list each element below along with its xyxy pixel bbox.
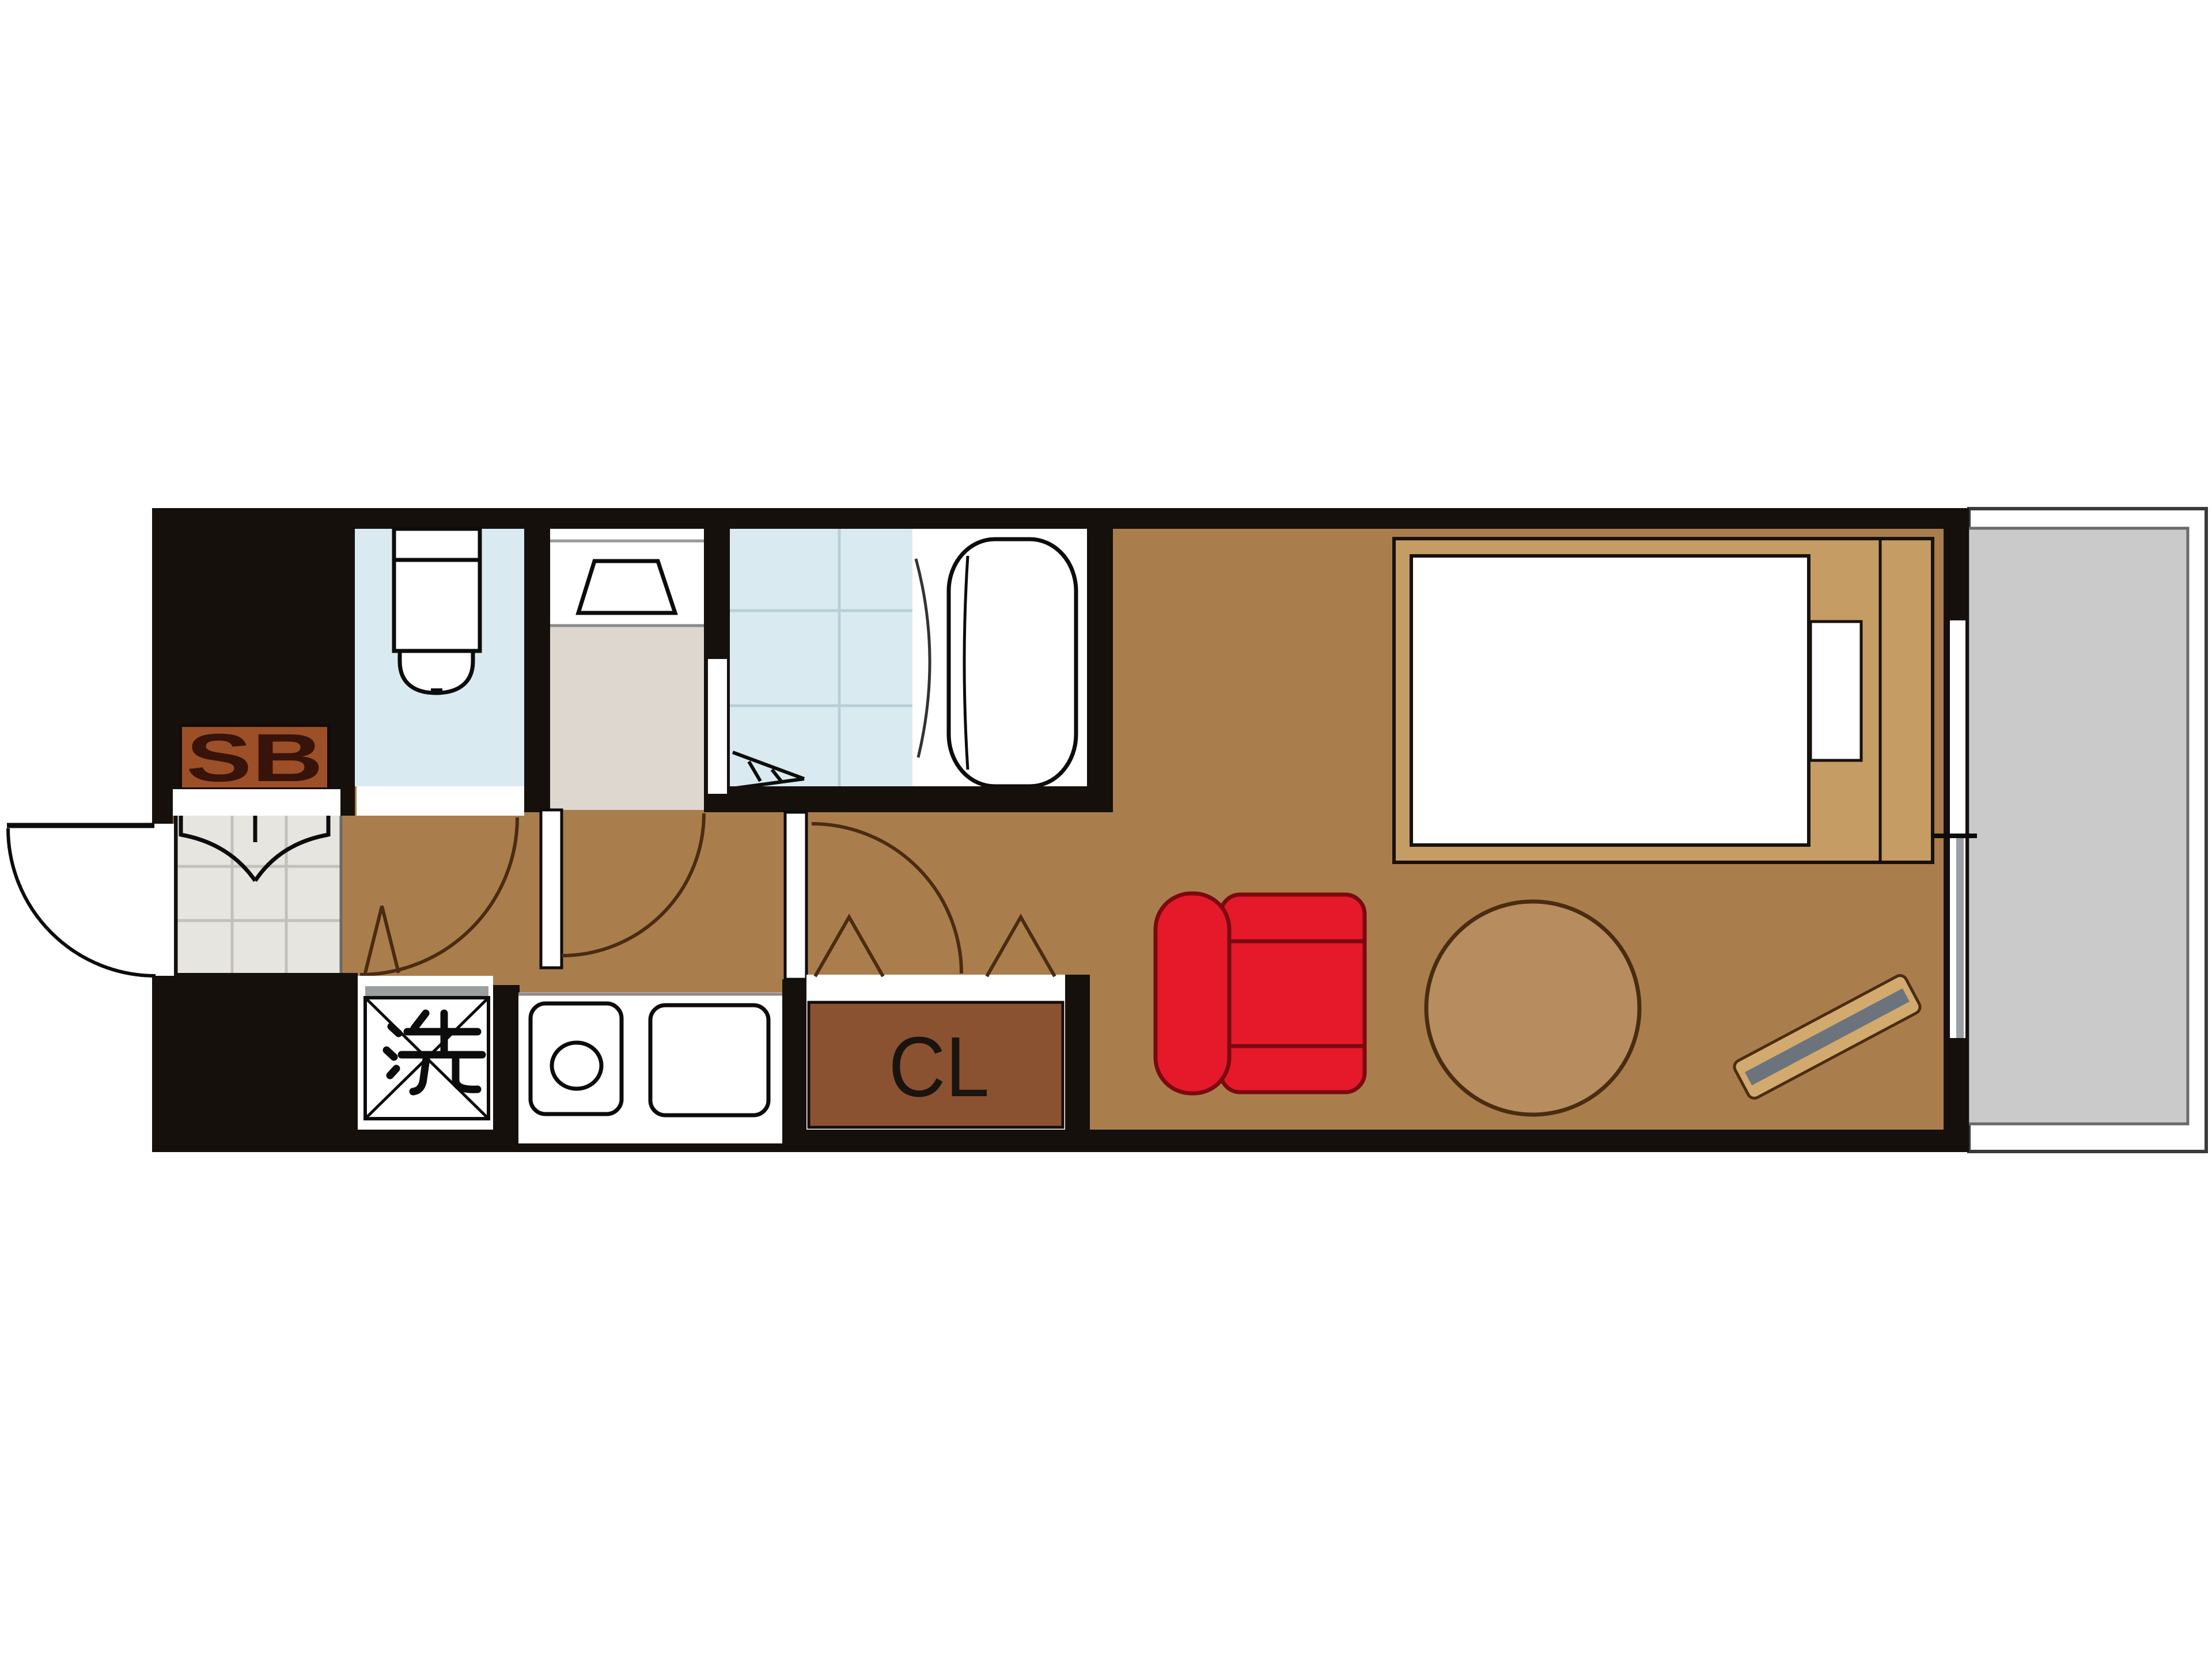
svg-text:CL: CL xyxy=(889,1020,990,1115)
svg-text:SB: SB xyxy=(186,720,323,796)
